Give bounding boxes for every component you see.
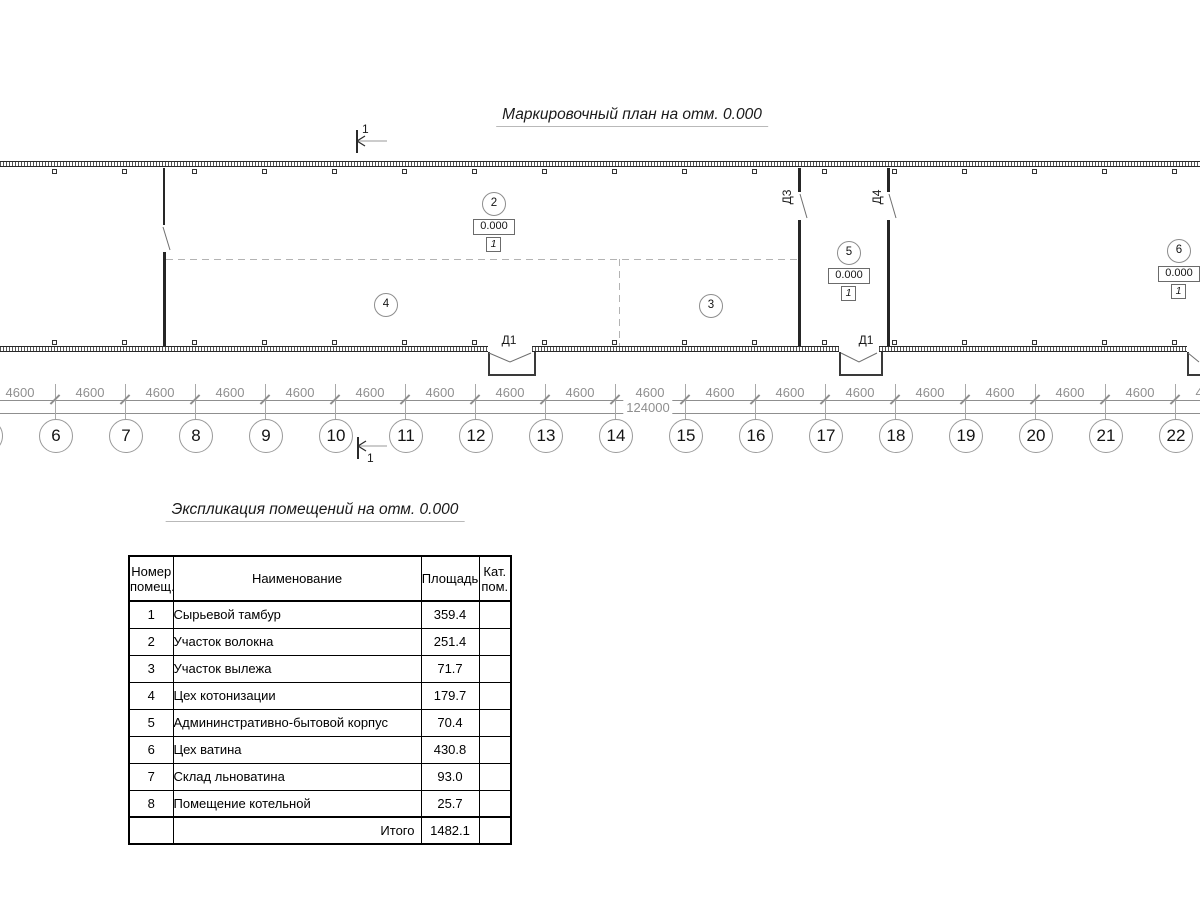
entrance-vestibule [1187, 352, 1200, 376]
table-cell: 71.7 [421, 655, 479, 682]
room-number-circle: 5 [837, 241, 861, 265]
room-schedule-table: Номер помещ.НаименованиеПлощадьКат. пом.… [128, 555, 512, 845]
table-header-row: Номер помещ.НаименованиеПлощадьКат. пом. [129, 556, 511, 601]
column-mark [752, 340, 757, 345]
column-mark [1172, 340, 1177, 345]
grid-axis-circle: 17 [809, 419, 843, 453]
room-number-circle: 3 [699, 294, 723, 318]
table-cell: Помещение котельной [173, 790, 421, 817]
column-mark [892, 340, 897, 345]
grid-axis-circle: 9 [249, 419, 283, 453]
zone-boundary-dashed-line [619, 259, 620, 346]
column-mark [1172, 169, 1177, 174]
column-mark [52, 169, 57, 174]
bay-dimension-label: 4600 [265, 385, 335, 400]
partition-wall [887, 220, 890, 346]
table-header-cell: Номер помещ. [129, 556, 173, 601]
bay-dimension-label: 4600 [895, 385, 965, 400]
bay-dimension-label: 4600 [1035, 385, 1105, 400]
section-mark-top-label: 1 [362, 122, 369, 136]
room-number-circle: 6 [1167, 239, 1191, 263]
column-mark [1032, 340, 1037, 345]
partition-wall [163, 252, 166, 346]
table-cell: Склад льноватина [173, 763, 421, 790]
table-cell: Цех котонизации [173, 682, 421, 709]
column-mark [682, 169, 687, 174]
table-row: 7Склад льноватина93.0 [129, 763, 511, 790]
table-cell: 3 [129, 655, 173, 682]
bay-dimension-label: 4600 [125, 385, 195, 400]
grid-axis-circle: 7 [109, 419, 143, 453]
table-cell: Админинстративно-бытовой корпус [173, 709, 421, 736]
table-cell: 25.7 [421, 790, 479, 817]
door-leaf-line [889, 194, 896, 218]
grid-axis-circle: 13 [529, 419, 563, 453]
table-row: Итого1482.1 [129, 817, 511, 844]
bay-dimension-label: 4600 [825, 385, 895, 400]
grid-axis-circle: 21 [1089, 419, 1123, 453]
bay-dimension-label: 4600 [195, 385, 265, 400]
table-cell [479, 763, 511, 790]
bay-dimension-label: 4600 [615, 385, 685, 400]
floor-type-box: 1 [841, 286, 856, 301]
column-mark [262, 340, 267, 345]
grid-axis-circle: 20 [1019, 419, 1053, 453]
table-cell: 430.8 [421, 736, 479, 763]
table-row: 1Сырьевой тамбур359.4 [129, 601, 511, 628]
table-cell [479, 682, 511, 709]
table-header-cell: Площадь [421, 556, 479, 601]
column-mark [192, 169, 197, 174]
grid-axis-circle: 10 [319, 419, 353, 453]
column-mark [1032, 169, 1037, 174]
table-cell: 1 [129, 601, 173, 628]
table-cell: 359.4 [421, 601, 479, 628]
table-cell: 8 [129, 790, 173, 817]
partition-wall [163, 168, 165, 225]
column-mark [752, 169, 757, 174]
table-cell [479, 736, 511, 763]
table-cell: Сырьевой тамбур [173, 601, 421, 628]
table-cell [479, 628, 511, 655]
table-cell [479, 709, 511, 736]
entrance-vestibule [839, 352, 883, 376]
elevation-box: 0.000 [1158, 266, 1200, 282]
column-mark [472, 340, 477, 345]
table-cell: 2 [129, 628, 173, 655]
column-mark [192, 340, 197, 345]
plan-title: Маркировочный план на отм. 0.000 [496, 106, 768, 127]
door-label: Д4 [870, 184, 884, 210]
bay-dimension-label: 4600 [965, 385, 1035, 400]
grid-axis-circle: 6 [39, 419, 73, 453]
bay-dimension-label: 4600 [55, 385, 125, 400]
total-dimension-label: 124000 [623, 400, 672, 415]
bay-dimension-label: 4600 [0, 385, 55, 400]
column-mark [52, 340, 57, 345]
drawing-sheet: Маркировочный план на отм. 0.000 1 1 124… [0, 0, 1200, 900]
column-mark [682, 340, 687, 345]
table-cell [479, 601, 511, 628]
grid-axis-circle: 22 [1159, 419, 1193, 453]
room-number-circle: 2 [482, 192, 506, 216]
schedule-title: Экспликация помещений на отм. 0.000 [166, 501, 465, 522]
partition-wall [887, 168, 890, 192]
top-exterior-wall [0, 161, 1200, 167]
dimension-line-bays [0, 400, 1200, 401]
table-cell: 70.4 [421, 709, 479, 736]
bay-dimension-label: 4600 [475, 385, 545, 400]
grid-axis-circle: 16 [739, 419, 773, 453]
column-mark [332, 169, 337, 174]
entrance-vestibule [488, 352, 536, 376]
grid-axis-circle: 8 [179, 419, 213, 453]
column-mark [262, 169, 267, 174]
table-cell: Участок вылежа [173, 655, 421, 682]
elevation-box: 0.000 [473, 219, 515, 235]
table-cell: 6 [129, 736, 173, 763]
table-cell: 251.4 [421, 628, 479, 655]
table-row: 2Участок волокна251.4 [129, 628, 511, 655]
table-row: 4Цех котонизации179.7 [129, 682, 511, 709]
column-mark [822, 340, 827, 345]
bottom-exterior-wall-segment [0, 346, 488, 352]
table-cell: 7 [129, 763, 173, 790]
door-leaf-line [163, 227, 170, 250]
table-row: 5Админинстративно-бытовой корпус70.4 [129, 709, 511, 736]
elevation-box: 0.000 [828, 268, 870, 284]
column-mark [402, 340, 407, 345]
table-cell: 4 [129, 682, 173, 709]
table-row: 3Участок вылежа71.7 [129, 655, 511, 682]
column-mark [472, 169, 477, 174]
bay-dimension-label: 4600 [1105, 385, 1175, 400]
grid-axis-circle: 11 [389, 419, 423, 453]
table-row: 6Цех ватина430.8 [129, 736, 511, 763]
column-mark [962, 169, 967, 174]
dimension-line-total [0, 413, 1200, 414]
partition-wall [798, 168, 801, 192]
column-mark [122, 340, 127, 345]
table-cell: Участок волокна [173, 628, 421, 655]
door-label: Д1 [496, 333, 522, 347]
door-leaf-line [800, 194, 807, 218]
zone-boundary-dashed-line [166, 259, 799, 260]
column-mark [542, 340, 547, 345]
door-label: Д1 [853, 333, 879, 347]
grid-axis-circle: 12 [459, 419, 493, 453]
table-cell: Итого [173, 817, 421, 844]
column-mark [612, 340, 617, 345]
table-cell [479, 817, 511, 844]
bottom-exterior-wall-segment [879, 346, 1187, 352]
table-cell [129, 817, 173, 844]
grid-axis-circle: 19 [949, 419, 983, 453]
door-label: Д3 [780, 184, 794, 210]
column-mark [822, 169, 827, 174]
column-mark [962, 340, 967, 345]
table-cell: 93.0 [421, 763, 479, 790]
bottom-exterior-wall-segment [532, 346, 839, 352]
column-mark [402, 169, 407, 174]
bay-dimension-label: 4600 [685, 385, 755, 400]
bay-dimension-label: 4600 [755, 385, 825, 400]
column-mark [1102, 169, 1107, 174]
column-mark [612, 169, 617, 174]
bay-dimension-label: 4600 [405, 385, 475, 400]
table-header-cell: Наименование [173, 556, 421, 601]
bay-dimension-label: 4600 [1175, 385, 1200, 400]
column-mark [122, 169, 127, 174]
grid-axis-circle: 14 [599, 419, 633, 453]
floor-type-box: 1 [1171, 284, 1186, 299]
column-mark [892, 169, 897, 174]
grid-axis-circle: 15 [669, 419, 703, 453]
table-cell: 1482.1 [421, 817, 479, 844]
floor-type-box: 1 [486, 237, 501, 252]
grid-axis-circle [0, 419, 3, 453]
table-header-cell: Кат. пом. [479, 556, 511, 601]
table-cell: Цех ватина [173, 736, 421, 763]
column-mark [332, 340, 337, 345]
table-cell [479, 655, 511, 682]
grid-axis-circle: 18 [879, 419, 913, 453]
column-mark [542, 169, 547, 174]
section-mark-bottom-label: 1 [367, 451, 374, 465]
table-row: 8Помещение котельной25.7 [129, 790, 511, 817]
partition-wall [798, 220, 801, 346]
column-mark [1102, 340, 1107, 345]
room-number-circle: 4 [374, 293, 398, 317]
bay-dimension-label: 4600 [335, 385, 405, 400]
table-cell: 179.7 [421, 682, 479, 709]
table-cell: 5 [129, 709, 173, 736]
bay-dimension-label: 4600 [545, 385, 615, 400]
table-cell [479, 790, 511, 817]
